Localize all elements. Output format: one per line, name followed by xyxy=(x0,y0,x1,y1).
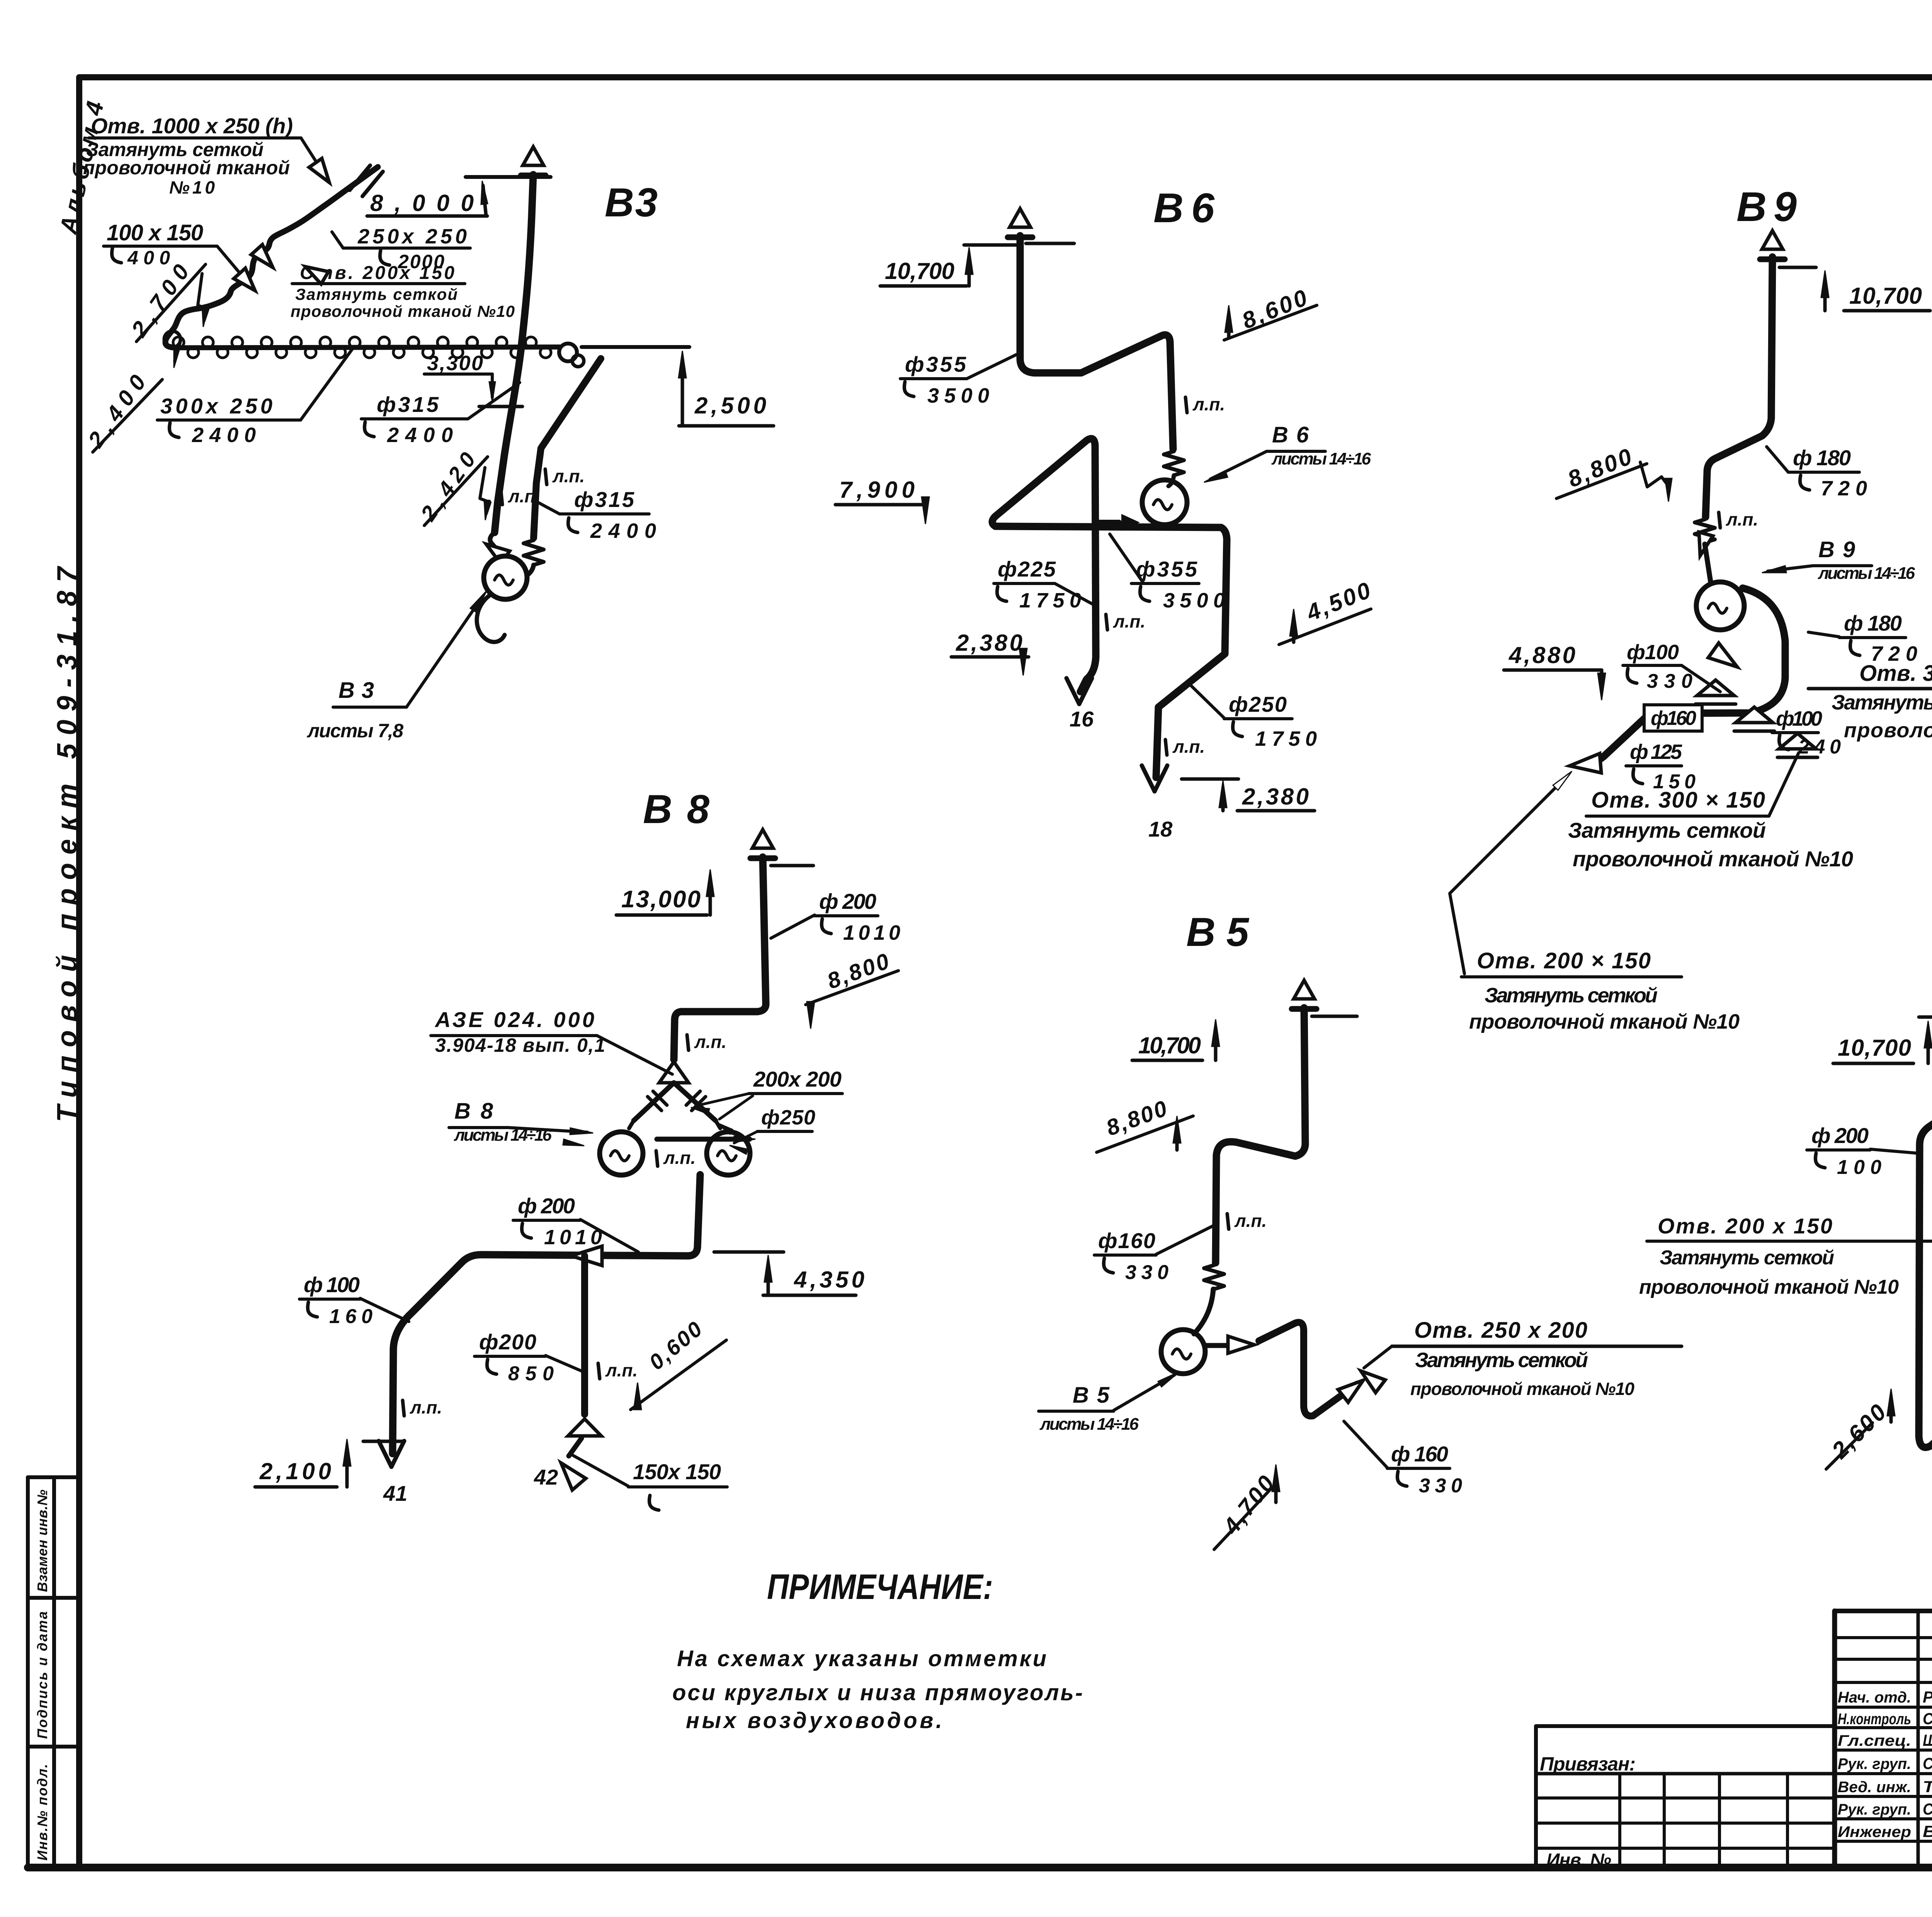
svg-text:ф 100: ф 100 xyxy=(304,1272,360,1297)
svg-text:41: 41 xyxy=(383,1481,407,1505)
svg-text:Отв. 250 х 200: Отв. 250 х 200 xyxy=(1414,1318,1587,1343)
svg-text:Инв. №: Инв. № xyxy=(1546,1850,1611,1871)
svg-text:Гл.спец.: Гл.спец. xyxy=(1838,1732,1911,1749)
svg-text:250х 250: 250х 250 xyxy=(357,225,467,248)
svg-text:Слободяник: Слободяник xyxy=(1923,1709,1932,1728)
svg-text:л.п.: л.п. xyxy=(1234,1211,1267,1231)
svg-text:ф250: ф250 xyxy=(761,1106,815,1129)
svg-text:АЗЕ 024. 000: АЗЕ 024. 000 xyxy=(434,1007,594,1032)
svg-text:№10: №10 xyxy=(169,177,215,197)
svg-text:Троянова: Троянова xyxy=(1923,1778,1932,1796)
svg-text:2,380: 2,380 xyxy=(956,630,1022,656)
svg-text:150х 150: 150х 150 xyxy=(633,1459,721,1484)
svg-text:л.п.: л.п. xyxy=(663,1148,696,1168)
svg-text:850: 850 xyxy=(508,1362,554,1385)
svg-text:ф250: ф250 xyxy=(1229,692,1287,716)
svg-text:Шапильский: Шапильский xyxy=(1923,1731,1932,1749)
svg-text:10,700: 10,700 xyxy=(1838,1035,1911,1061)
svg-text:В 8: В 8 xyxy=(454,1099,493,1124)
svg-text:Отв. 300 × 150: Отв. 300 × 150 xyxy=(1591,788,1765,813)
svg-text:Инженер: Инженер xyxy=(1838,1823,1911,1840)
svg-text:10,700: 10,700 xyxy=(885,258,954,284)
svg-text:330: 330 xyxy=(1419,1475,1462,1497)
svg-text:4,350: 4,350 xyxy=(794,1267,864,1293)
svg-text:ПРИМЕЧАНИЕ:: ПРИМЕЧАНИЕ: xyxy=(767,1567,993,1607)
svg-text:листы 7,8: листы 7,8 xyxy=(307,720,403,742)
svg-text:Воронина: Воронина xyxy=(1923,1822,1932,1840)
svg-text:проволочной тканой №10: проволочной тканой №10 xyxy=(1469,1010,1740,1033)
svg-text:240: 240 xyxy=(1798,736,1841,758)
svg-text:Инв.№ подл.: Инв.№ подл. xyxy=(34,1764,50,1861)
svg-text:100: 100 xyxy=(1837,1156,1881,1179)
svg-text:Розенталь: Розенталь xyxy=(1923,1688,1932,1706)
svg-text:ф200: ф200 xyxy=(479,1330,536,1354)
svg-text:листы 14÷16: листы 14÷16 xyxy=(1818,564,1915,583)
svg-text:200х 200: 200х 200 xyxy=(753,1067,842,1091)
svg-text:ф 160: ф 160 xyxy=(1391,1442,1448,1466)
svg-text:Затянуть сеткой: Затянуть сеткой xyxy=(1568,818,1766,842)
svg-text:На схемах указаны отметки: На схемах указаны отметки xyxy=(677,1646,1046,1671)
svg-text:ф355: ф355 xyxy=(1136,557,1197,581)
svg-text:18: 18 xyxy=(1148,817,1173,841)
svg-text:л.п.: л.п. xyxy=(605,1360,638,1380)
svg-text:2,380: 2,380 xyxy=(1242,784,1309,810)
svg-text:л.п.: л.п. xyxy=(1172,737,1205,757)
svg-text:Взамен инв.№: Взамен инв.№ xyxy=(34,1490,50,1592)
svg-text:В 5: В 5 xyxy=(1073,1383,1110,1408)
svg-text:ф160: ф160 xyxy=(1098,1228,1155,1253)
svg-text:ф100: ф100 xyxy=(1627,641,1679,664)
svg-text:4,880: 4,880 xyxy=(1509,642,1575,668)
svg-text:листы 14÷16: листы 14÷16 xyxy=(1039,1415,1139,1434)
svg-text:Отв. 1000 х 250 (h): Отв. 1000 х 250 (h) xyxy=(91,114,293,138)
svg-text:3,300: 3,300 xyxy=(427,352,483,375)
svg-text:проволочной тканой №10: проволочной тканой №10 xyxy=(1573,847,1853,871)
svg-text:л.п.: л.п. xyxy=(508,486,540,506)
svg-text:330: 330 xyxy=(1647,670,1692,692)
svg-text:Подпись и дата: Подпись и дата xyxy=(34,1611,50,1739)
svg-text:Затянуть сеткой: Затянуть сеткой xyxy=(1415,1349,1588,1372)
svg-text:Слободяник: Слободяник xyxy=(1923,1754,1932,1772)
svg-text:л.п.: л.п. xyxy=(410,1397,442,1417)
svg-text:2,100: 2,100 xyxy=(259,1458,331,1484)
svg-text:Рук. груп.: Рук. груп. xyxy=(1838,1755,1911,1772)
svg-text:10,700: 10,700 xyxy=(1138,1032,1201,1058)
svg-text:ф 200: ф 200 xyxy=(1811,1123,1869,1148)
svg-text:В3: В3 xyxy=(605,180,658,225)
svg-text:л.п.: л.п. xyxy=(1726,509,1758,529)
svg-text:13,000: 13,000 xyxy=(621,886,701,913)
svg-text:Рук. груп.: Рук. груп. xyxy=(1838,1801,1911,1818)
svg-text:Затянуть сеткой: Затянуть сеткой xyxy=(295,285,457,303)
svg-text:проволочной тканой №10: проволочной тканой №10 xyxy=(291,302,515,320)
svg-text:400: 400 xyxy=(127,247,170,269)
svg-text:проволочной тканой №10: проволочной тканой №10 xyxy=(1410,1379,1634,1399)
svg-text:3.904-18 вып. 0,1: 3.904-18 вып. 0,1 xyxy=(435,1034,605,1056)
svg-text:л.п.: л.п. xyxy=(1113,611,1145,631)
svg-text:ф 200: ф 200 xyxy=(819,889,876,913)
svg-text:ф 180: ф 180 xyxy=(1844,611,1902,635)
svg-text:Затянуть сеткой: Затянуть сеткой xyxy=(1832,691,1932,714)
svg-text:Вед. инж.: Вед. инж. xyxy=(1838,1779,1911,1796)
svg-text:Слободяник: Слободяник xyxy=(1923,1800,1932,1818)
svg-text:Отв. 200 × 150: Отв. 200 × 150 xyxy=(1477,948,1651,973)
svg-text:л.п.: л.п. xyxy=(552,466,585,486)
svg-text:Отв. 300 ×150: Отв. 300 ×150 xyxy=(1859,661,1932,686)
svg-text:330: 330 xyxy=(1125,1261,1168,1284)
svg-text:Затянуть сеткой: Затянуть сеткой xyxy=(1660,1247,1834,1269)
svg-text:оси круглых и низа прямоуг: оси круглых и низа прямоуголь- xyxy=(672,1680,1083,1705)
svg-text:ф 180: ф 180 xyxy=(1793,446,1851,470)
svg-text:16: 16 xyxy=(1070,707,1094,731)
svg-text:Нач. отд.: Нач. отд. xyxy=(1838,1689,1911,1706)
svg-text:10,700: 10,700 xyxy=(1849,283,1922,309)
svg-text:ф 200: ф 200 xyxy=(518,1194,575,1218)
svg-text:проволочной тканой: проволочной тканой xyxy=(83,157,290,179)
svg-text:160: 160 xyxy=(329,1305,372,1328)
svg-text:проволочной тканой №10: проволочной тканой №10 xyxy=(1639,1276,1899,1298)
svg-text:300х 250: 300х 250 xyxy=(160,394,272,418)
svg-text:листы 14÷16: листы 14÷16 xyxy=(1271,449,1371,468)
svg-text:720: 720 xyxy=(1821,477,1867,500)
svg-text:100 х 150: 100 х 150 xyxy=(107,220,203,245)
svg-text:ф225: ф225 xyxy=(998,557,1056,581)
svg-text:л.п.: л.п. xyxy=(694,1032,726,1052)
svg-text:ф 125: ф 125 xyxy=(1630,740,1682,764)
svg-text:ных воздуховодов.: ных воздуховодов. xyxy=(686,1708,942,1733)
svg-text:7,900: 7,900 xyxy=(839,477,915,503)
svg-text:ф100: ф100 xyxy=(1776,707,1822,730)
svg-text:проволочной тканой №10: проволочной тканой №10 xyxy=(1844,719,1932,742)
svg-text:Затянуть сеткой: Затянуть сеткой xyxy=(1485,984,1658,1007)
svg-text:ф355: ф355 xyxy=(905,352,966,376)
svg-text:42: 42 xyxy=(534,1465,558,1489)
svg-text:л.п.: л.п. xyxy=(1192,394,1225,414)
svg-text:ф160: ф160 xyxy=(1651,707,1696,730)
svg-text:ф315: ф315 xyxy=(574,487,634,512)
svg-text:Привязан:: Привязан: xyxy=(1540,1753,1636,1775)
svg-text:ф315: ф315 xyxy=(377,392,439,417)
svg-text:2,500: 2,500 xyxy=(694,393,766,418)
svg-text:Н.контроль: Н.контроль xyxy=(1838,1711,1911,1728)
